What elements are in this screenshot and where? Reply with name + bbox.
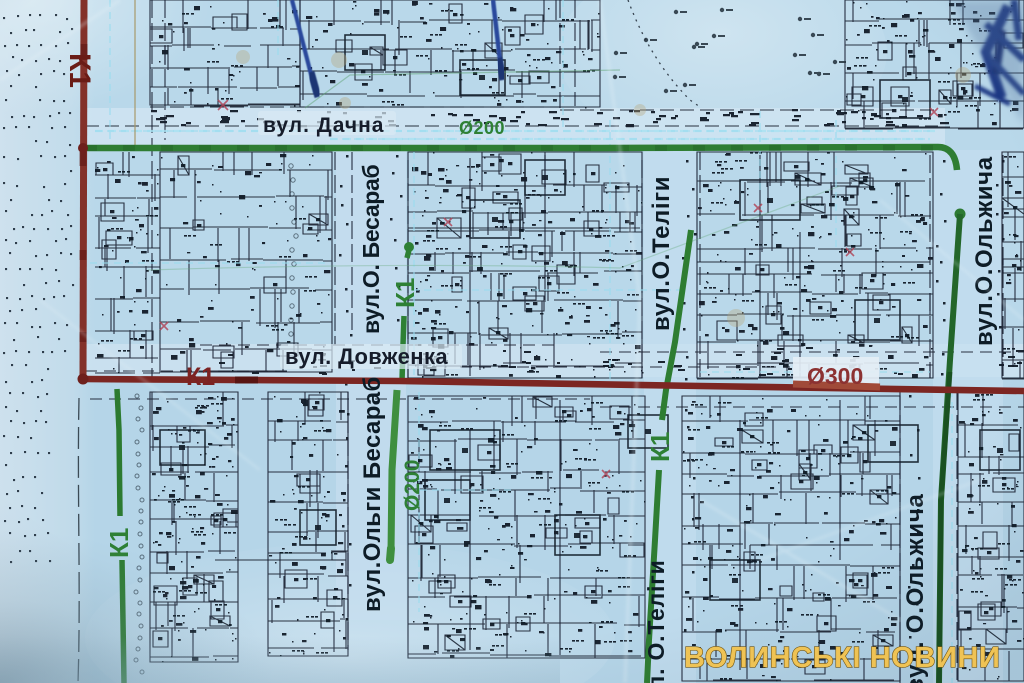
- svg-text:ВОЛИНСЬКІ НОВИНИ: ВОЛИНСЬКІ НОВИНИ: [684, 642, 1000, 674]
